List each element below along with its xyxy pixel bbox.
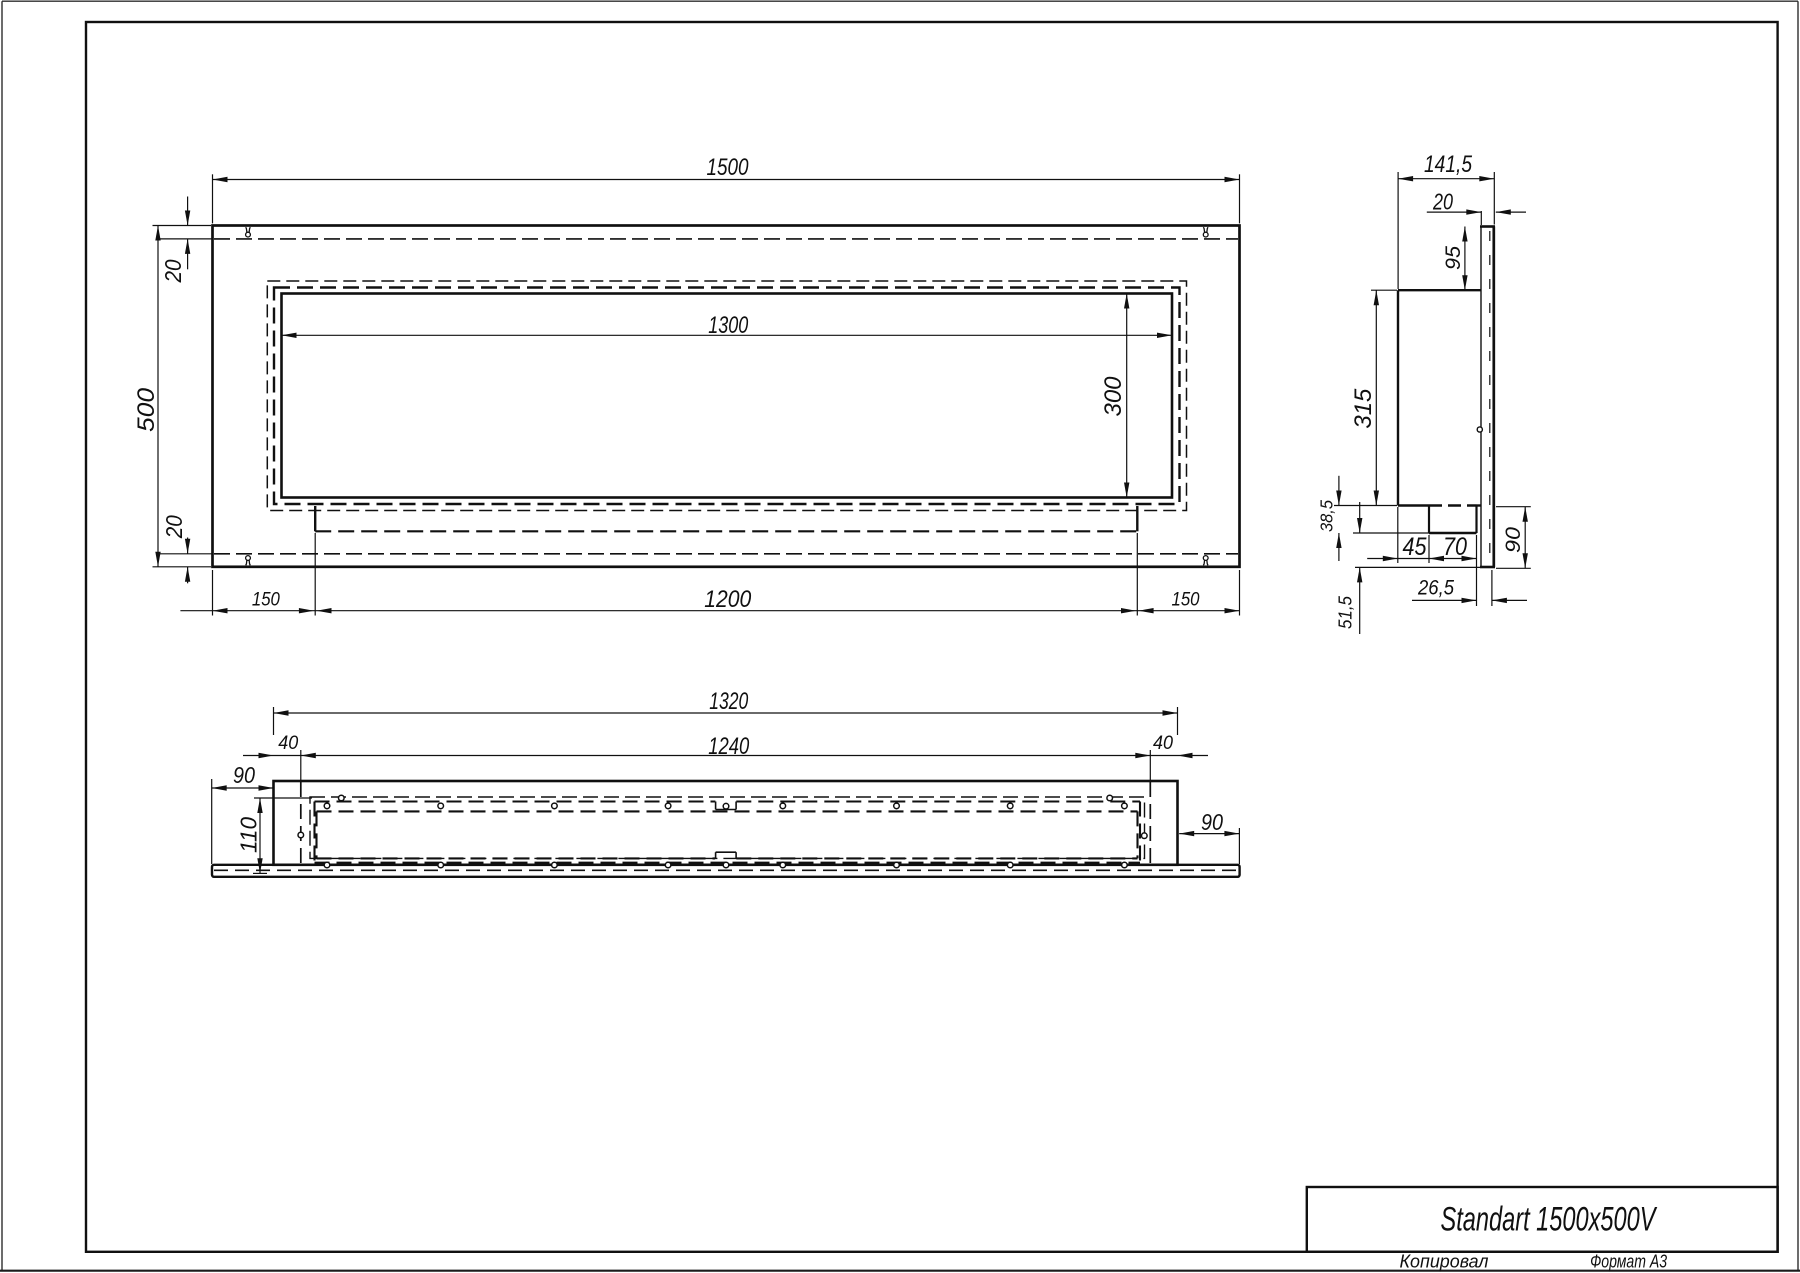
svg-text:70: 70 bbox=[1443, 533, 1467, 561]
svg-text:1200: 1200 bbox=[704, 586, 752, 613]
svg-text:Копировал: Копировал bbox=[1400, 1251, 1489, 1271]
svg-text:Standart 1500x500V: Standart 1500x500V bbox=[1441, 1200, 1658, 1238]
svg-text:315: 315 bbox=[1350, 388, 1377, 429]
svg-text:1240: 1240 bbox=[708, 733, 750, 760]
svg-text:95: 95 bbox=[1442, 246, 1465, 270]
svg-text:Формат А3: Формат А3 bbox=[1590, 1251, 1667, 1271]
svg-text:150: 150 bbox=[252, 590, 280, 611]
svg-text:20: 20 bbox=[161, 515, 187, 539]
svg-text:38,5: 38,5 bbox=[1317, 500, 1337, 532]
svg-text:90: 90 bbox=[1501, 527, 1525, 553]
svg-text:40: 40 bbox=[1153, 733, 1173, 754]
svg-text:26,5: 26,5 bbox=[1417, 576, 1455, 600]
svg-text:150: 150 bbox=[1172, 590, 1200, 611]
svg-text:40: 40 bbox=[278, 733, 298, 754]
svg-text:1500: 1500 bbox=[707, 154, 750, 181]
svg-text:500: 500 bbox=[133, 387, 160, 432]
svg-text:20: 20 bbox=[1432, 189, 1453, 215]
svg-text:90: 90 bbox=[233, 762, 255, 788]
svg-text:141,5: 141,5 bbox=[1424, 151, 1473, 178]
svg-text:1320: 1320 bbox=[709, 688, 748, 715]
svg-text:1300: 1300 bbox=[708, 312, 748, 339]
svg-text:110: 110 bbox=[236, 817, 262, 853]
svg-text:51,5: 51,5 bbox=[1335, 595, 1356, 629]
svg-text:300: 300 bbox=[1100, 376, 1127, 417]
svg-text:90: 90 bbox=[1201, 809, 1223, 835]
svg-text:45: 45 bbox=[1403, 533, 1427, 561]
svg-text:20: 20 bbox=[160, 259, 186, 283]
